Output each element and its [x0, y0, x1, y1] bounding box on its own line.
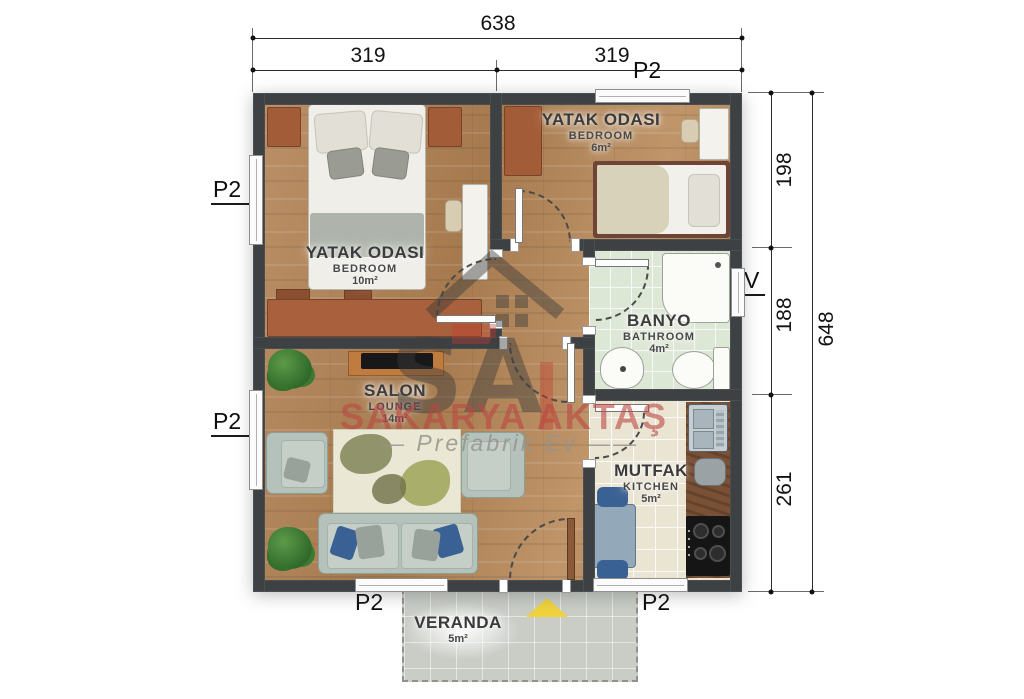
panel-marker-bottom-right: P2 [642, 590, 670, 615]
dim-right-seg-3: 261 [773, 459, 797, 519]
room-name-tr: YATAK ODASI [531, 110, 671, 130]
panel-marker-top: P2 [633, 58, 661, 83]
dim-top-total: 638 [462, 12, 534, 36]
dim-line-right-total [812, 93, 813, 592]
sink-drain [620, 366, 626, 372]
plant [268, 527, 312, 569]
dim-right-seg-2: 188 [773, 285, 797, 345]
room-name-tr: VERANDA [398, 613, 518, 633]
door-bedroom-small [515, 188, 523, 243]
panel-marker-left-lower: P2 [211, 409, 251, 437]
house-roof-icon [430, 258, 560, 314]
extension-line [496, 60, 497, 91]
room-label-veranda: VERANDA 5m² [398, 613, 518, 645]
room-name-tr: MUTFAK [581, 461, 721, 481]
duvet [597, 165, 669, 234]
vent-marker: V [742, 268, 765, 296]
wall-hall-top-right [571, 239, 742, 251]
pillow [371, 147, 410, 181]
drainboard [716, 410, 724, 447]
room-area: 5m² [581, 493, 721, 505]
floor-plan-canvas: 638 319 319 P2 198 188 261 648 P2 P2 P2 … [0, 0, 1024, 699]
dim-line-top-total [253, 38, 742, 39]
room-name-en: BATHROOM [589, 331, 729, 343]
dim-right-total: 648 [815, 299, 839, 359]
room-name-tr: BANYO [589, 311, 729, 331]
room-area: 4m² [589, 343, 729, 355]
toilet-bowl [672, 351, 716, 389]
window-bathroom [731, 268, 745, 317]
wall-right [730, 93, 742, 592]
window-bedroom-small [595, 89, 690, 103]
room-label-kitchen: MUTFAK KITCHEN 5m² [581, 461, 721, 505]
kitchen-chair [597, 560, 628, 580]
desk [699, 108, 729, 160]
window-lounge-left [249, 390, 263, 490]
room-label-bedroom-small: YATAK ODASI BEDROOM 6m² [531, 110, 671, 154]
dim-top-seg-left: 319 [332, 44, 404, 68]
window-lounge-bottom [355, 578, 448, 592]
entrance-arrow-icon [526, 598, 568, 617]
kitchen-table [592, 504, 636, 568]
shower-drain [715, 262, 721, 268]
watermark-tagline: — Prefabrik Ev —— [370, 430, 650, 457]
window-kitchen [593, 578, 688, 592]
room-area: 5m² [398, 633, 518, 645]
desk-chair [445, 200, 462, 232]
single-bed [593, 161, 730, 238]
door-bathroom [595, 259, 649, 267]
window-bedroom-main [249, 155, 263, 245]
pillow [313, 110, 368, 154]
dim-line-right-segments [771, 93, 772, 592]
cooktop-controls [688, 530, 690, 532]
stool [681, 119, 699, 143]
pillow [326, 147, 365, 181]
cooktop [686, 516, 730, 576]
kitchen-sink [688, 404, 728, 452]
panel-marker-left-upper: P2 [211, 177, 251, 205]
room-label-bathroom: BANYO BATHROOM 4m² [589, 311, 729, 355]
panel-marker-bottom-left: P2 [355, 590, 383, 615]
nightstand [267, 107, 301, 147]
door-entrance [567, 518, 575, 580]
wall-bedrooms-divider [490, 93, 502, 258]
nightstand [428, 107, 462, 147]
room-name-en: BEDROOM [531, 130, 671, 142]
sofa [318, 513, 478, 574]
room-area: 6m² [531, 142, 671, 154]
pillow [688, 174, 720, 227]
dim-right-seg-1: 198 [773, 140, 797, 200]
armchair [266, 432, 328, 494]
plant [268, 349, 312, 389]
room-name-en: KITCHEN [581, 481, 721, 493]
